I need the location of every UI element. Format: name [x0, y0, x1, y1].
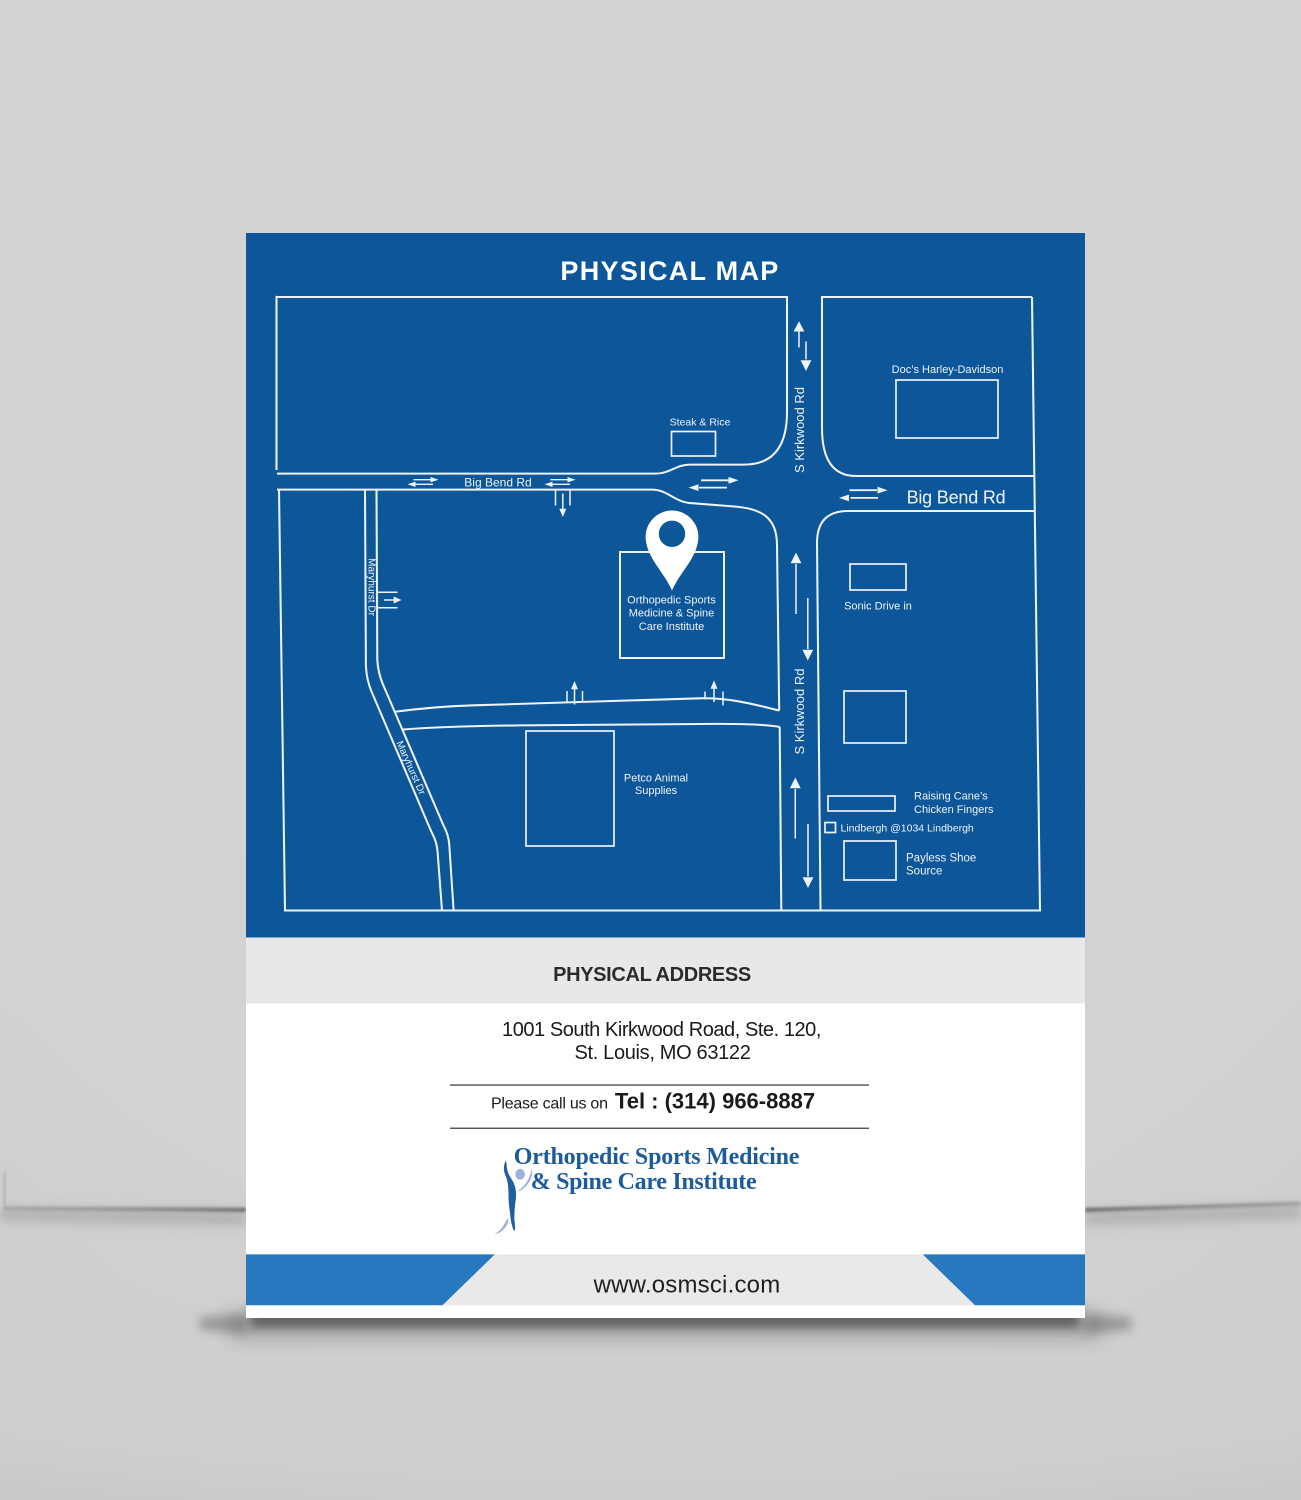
- svg-text:St. Louis, MO 63122: St. Louis, MO 63122: [574, 1042, 750, 1064]
- svg-text:Petco Animal: Petco Animal: [624, 773, 688, 785]
- svg-text:1001 South Kirkwood Road, Ste.: 1001 South Kirkwood Road, Ste. 120,: [502, 1019, 821, 1041]
- svg-text:Big Bend Rd: Big Bend Rd: [464, 476, 531, 490]
- svg-text:& Spine Care Institute: & Spine Care Institute: [531, 1169, 757, 1195]
- svg-text:S Kirkwood Rd: S Kirkwood Rd: [792, 387, 807, 473]
- svg-text:PHYSICAL ADDRESS: PHYSICAL ADDRESS: [553, 964, 751, 986]
- svg-text:Orthopedic Sports: Orthopedic Sports: [627, 594, 716, 606]
- svg-text:Sonic Drive in: Sonic Drive in: [844, 601, 912, 613]
- svg-text:Payless Shoe: Payless Shoe: [906, 853, 976, 865]
- svg-text:Chicken Fingers: Chicken Fingers: [914, 804, 994, 816]
- svg-text:Care Institute: Care Institute: [639, 621, 704, 633]
- svg-text:Steak & Rice: Steak & Rice: [670, 416, 731, 428]
- svg-text:PHYSICAL MAP: PHYSICAL MAP: [560, 256, 779, 286]
- svg-text:Doc’s Harley-Davidson: Doc’s Harley-Davidson: [892, 364, 1004, 376]
- svg-text:Raising Cane’s: Raising Cane’s: [914, 791, 988, 803]
- svg-text:Medicine & Spine: Medicine & Spine: [629, 608, 715, 620]
- svg-text:Source: Source: [906, 866, 942, 878]
- svg-text:Maryhurst Dr: Maryhurst Dr: [366, 558, 377, 616]
- svg-text:www.osmsci.com: www.osmsci.com: [593, 1272, 781, 1299]
- svg-text:Big Bend Rd: Big Bend Rd: [907, 487, 1006, 507]
- svg-text:Lindbergh @1034 Lindbergh: Lindbergh @1034 Lindbergh: [841, 823, 974, 835]
- svg-text:Orthopedic Sports Medicine: Orthopedic Sports Medicine: [514, 1144, 800, 1170]
- svg-text:S Kirkwood Rd: S Kirkwood Rd: [792, 669, 807, 755]
- svg-text:Supplies: Supplies: [635, 785, 678, 797]
